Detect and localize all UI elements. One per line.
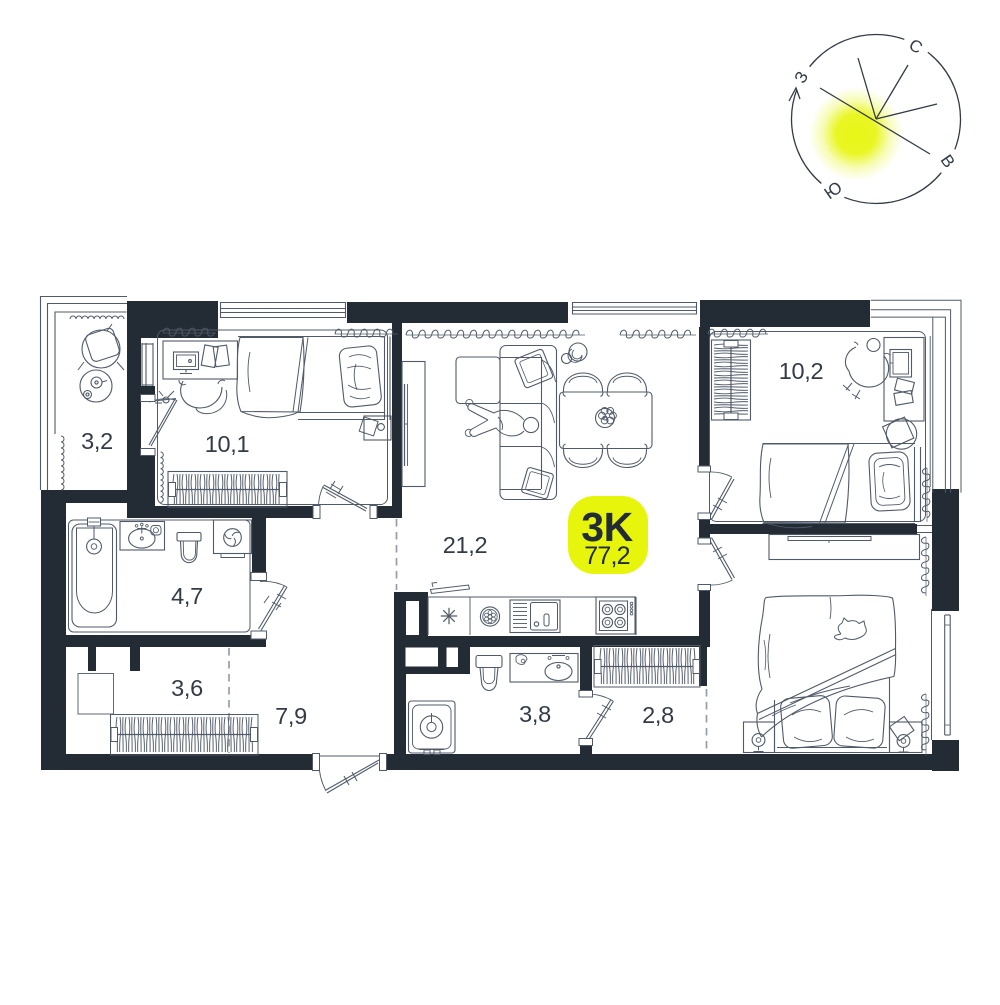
svg-text:10,1: 10,1 [205,431,250,457]
svg-text:3,2: 3,2 [81,428,113,454]
svg-text:4,7: 4,7 [171,583,203,609]
svg-text:77,2: 77,2 [584,542,629,570]
svg-text:3,6: 3,6 [171,675,203,701]
svg-text:7,9: 7,9 [275,703,307,729]
svg-text:3,8: 3,8 [519,701,551,727]
svg-text:10,2: 10,2 [779,358,824,384]
svg-text:21,2: 21,2 [443,532,488,558]
svg-text:2,8: 2,8 [642,702,674,728]
